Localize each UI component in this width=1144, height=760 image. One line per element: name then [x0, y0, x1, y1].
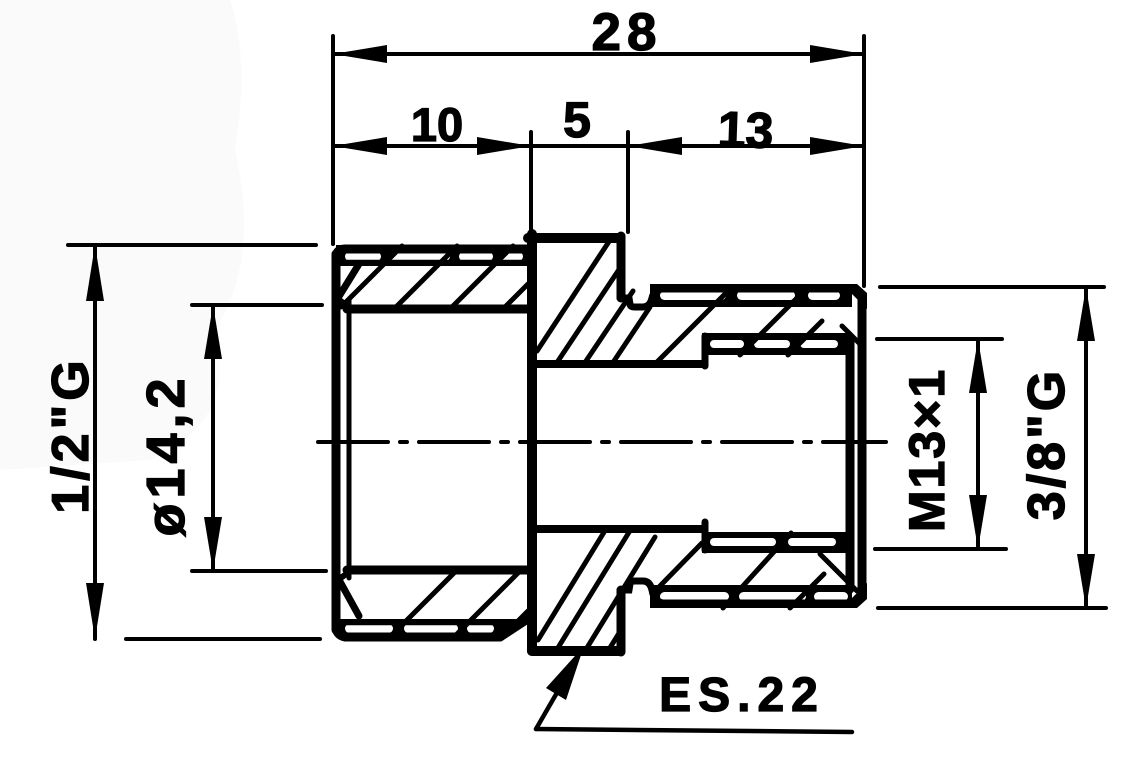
svg-text:28: 28	[592, 3, 663, 62]
svg-text:3/8"G: 3/8"G	[1018, 368, 1076, 520]
svg-text:M13×1: M13×1	[899, 368, 955, 532]
svg-text:10: 10	[411, 98, 463, 151]
svg-text:5: 5	[563, 92, 591, 148]
svg-text:13: 13	[717, 101, 775, 159]
svg-text:1/2"G: 1/2"G	[42, 356, 100, 513]
svg-text:ES.22: ES.22	[659, 669, 825, 722]
svg-text:ø14,2: ø14,2	[136, 373, 196, 536]
